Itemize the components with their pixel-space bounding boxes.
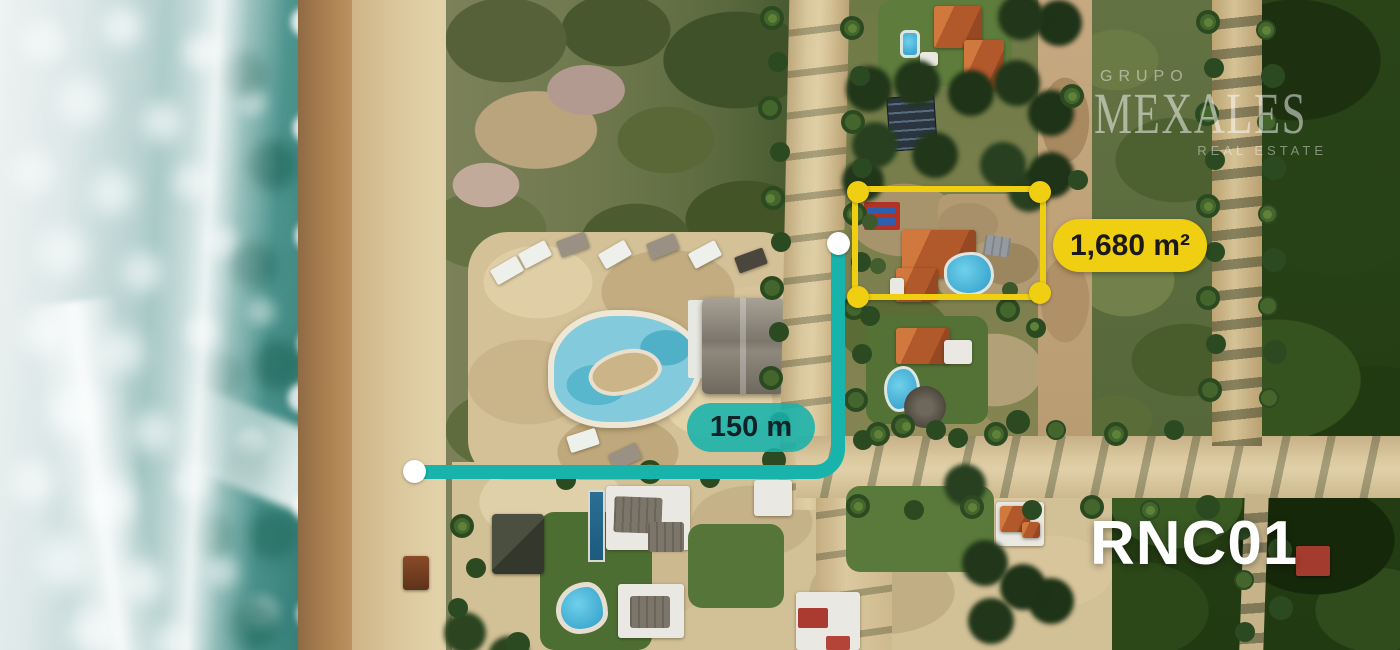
aerial-listing-photo: GRUPO MEXALES REAL ESTATE 150 m 1,680 m²…	[0, 0, 1400, 650]
listing-code: RNC01	[1090, 508, 1298, 579]
palm-shadows	[1212, 0, 1262, 446]
lot-corner-dot-top-left	[847, 181, 869, 203]
solar-array	[886, 94, 938, 151]
red-roof	[798, 608, 828, 628]
swimming-pool	[900, 30, 920, 58]
orange-roof-house	[1022, 522, 1040, 538]
lot-corner-dot-bottom-right	[1029, 282, 1051, 304]
area-badge: 1,680 m²	[1053, 219, 1207, 272]
beach-hut	[403, 556, 429, 590]
kidney-pool	[556, 582, 608, 634]
palapa-cone-roof	[904, 386, 946, 428]
orange-roof-house	[896, 328, 950, 364]
distance-badge: 150 m	[687, 403, 815, 452]
distance-endpoint-dot-beach	[403, 460, 426, 483]
pergola-roof	[754, 480, 792, 516]
lap-pool	[588, 490, 605, 562]
palm-tree-highlights	[0, 0, 9, 9]
lot-boundary	[852, 186, 1046, 300]
white-roof	[920, 52, 938, 66]
palm-lined-road	[1212, 0, 1262, 446]
lot-corner-dot-bottom-left	[847, 286, 869, 308]
red-roof-cottage	[1296, 546, 1330, 576]
lawn	[846, 486, 994, 572]
red-roof	[826, 636, 850, 650]
thatch-roof	[648, 522, 684, 552]
thatch-roof	[630, 596, 670, 628]
watermark-tagline: REAL ESTATE	[1095, 143, 1327, 158]
lot-corner-dot-top-right	[1029, 181, 1051, 203]
white-roof	[944, 340, 972, 364]
lawn	[688, 524, 784, 608]
dark-thatch-house	[492, 514, 544, 574]
distance-endpoint-dot-lot	[827, 232, 850, 255]
orange-roof-house	[964, 40, 1004, 90]
watermark-brand-logo: MEXALES	[1094, 80, 1307, 147]
